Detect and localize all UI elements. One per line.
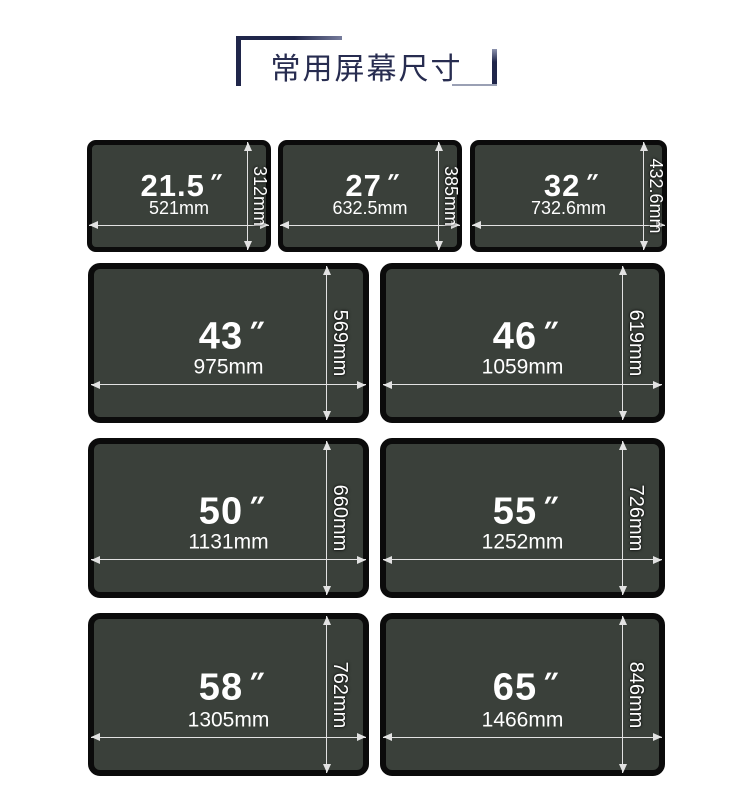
height-dimension-arrow bbox=[622, 616, 623, 773]
height-dimension-arrow bbox=[247, 142, 248, 250]
width-dimension-arrow bbox=[472, 225, 665, 226]
screen-height-label: 846mm bbox=[624, 661, 647, 728]
screen-height-label: 385mm bbox=[440, 166, 461, 226]
inch-mark-icon: ″ bbox=[244, 490, 265, 522]
screen-width-label: 975mm bbox=[193, 356, 263, 380]
width-dimension-arrow bbox=[383, 737, 662, 738]
page-title: 常用屏幕尺寸 bbox=[236, 44, 497, 88]
width-dimension-arrow bbox=[91, 559, 366, 560]
width-dimension-arrow bbox=[89, 225, 269, 226]
screen-size-label: 65″ bbox=[493, 667, 552, 710]
width-dimension-arrow bbox=[280, 225, 460, 226]
height-dimension-arrow bbox=[326, 441, 327, 595]
screen-height-label: 432.6mm bbox=[645, 158, 666, 233]
height-dimension-arrow bbox=[643, 142, 644, 250]
size-number: 55 bbox=[493, 491, 537, 533]
screen-height-label: 312mm bbox=[249, 166, 270, 226]
screen-size-label: 50″ bbox=[199, 491, 258, 534]
size-number: 46 bbox=[493, 316, 537, 358]
screen-width-label: 1252mm bbox=[482, 531, 564, 555]
screen-size-label: 43″ bbox=[199, 316, 258, 359]
screen-width-label: 632.5mm bbox=[332, 198, 407, 219]
screen-32-inch: 32″ 732.6mm 432.6mm bbox=[470, 140, 667, 252]
inch-mark-icon: ″ bbox=[538, 490, 559, 522]
screen-height-label: 619mm bbox=[624, 310, 647, 377]
screen-width-label: 1059mm bbox=[482, 356, 564, 380]
screen-height-label: 660mm bbox=[328, 485, 351, 552]
size-number: 50 bbox=[199, 491, 243, 533]
screen-size-label: 58″ bbox=[199, 667, 258, 710]
inch-mark-icon: ″ bbox=[383, 169, 400, 195]
screen-width-label: 732.6mm bbox=[531, 198, 606, 219]
title-bracket-top-line bbox=[236, 36, 342, 40]
width-dimension-arrow bbox=[91, 384, 366, 385]
infographic-canvas: 常用屏幕尺寸 21.5″ 521mm 312mm 27″ 632.5mm 385… bbox=[0, 0, 750, 800]
screen-height-label: 569mm bbox=[328, 310, 351, 377]
screen-50-inch: 50″ 1131mm 660mm bbox=[88, 438, 369, 598]
screen-46-inch: 46″ 1059mm 619mm bbox=[380, 263, 665, 423]
inch-mark-icon: ″ bbox=[538, 315, 559, 347]
inch-mark-icon: ″ bbox=[244, 667, 265, 699]
size-number: 43 bbox=[199, 316, 243, 358]
title-block: 常用屏幕尺寸 bbox=[0, 0, 750, 100]
screen-width-label: 1466mm bbox=[482, 708, 564, 732]
height-dimension-arrow bbox=[326, 266, 327, 420]
size-number: 65 bbox=[493, 667, 537, 709]
inch-mark-icon: ″ bbox=[206, 169, 223, 195]
screen-58-inch: 58″ 1305mm 762mm bbox=[88, 613, 369, 776]
screen-size-label: 46″ bbox=[493, 316, 552, 359]
height-dimension-arrow bbox=[622, 266, 623, 420]
screen-43-inch: 43″ 975mm 569mm bbox=[88, 263, 369, 423]
width-dimension-arrow bbox=[383, 384, 662, 385]
screen-height-label: 726mm bbox=[624, 485, 647, 552]
height-dimension-arrow bbox=[438, 142, 439, 250]
screen-21-5-inch: 21.5″ 521mm 312mm bbox=[87, 140, 271, 252]
screen-27-inch: 27″ 632.5mm 385mm bbox=[278, 140, 462, 252]
screen-width-label: 521mm bbox=[149, 198, 209, 219]
inch-mark-icon: ″ bbox=[538, 667, 559, 699]
inch-mark-icon: ″ bbox=[244, 315, 265, 347]
height-dimension-arrow bbox=[622, 441, 623, 595]
screen-width-label: 1131mm bbox=[188, 531, 268, 555]
inch-mark-icon: ″ bbox=[582, 169, 599, 195]
width-dimension-arrow bbox=[383, 559, 662, 560]
screen-width-label: 1305mm bbox=[188, 708, 270, 732]
width-dimension-arrow bbox=[91, 737, 366, 738]
screen-55-inch: 55″ 1252mm 726mm bbox=[380, 438, 665, 598]
screen-height-label: 762mm bbox=[328, 661, 351, 728]
height-dimension-arrow bbox=[326, 616, 327, 773]
screen-size-label: 55″ bbox=[493, 491, 552, 534]
size-number: 58 bbox=[199, 667, 243, 709]
screen-65-inch: 65″ 1466mm 846mm bbox=[380, 613, 665, 776]
